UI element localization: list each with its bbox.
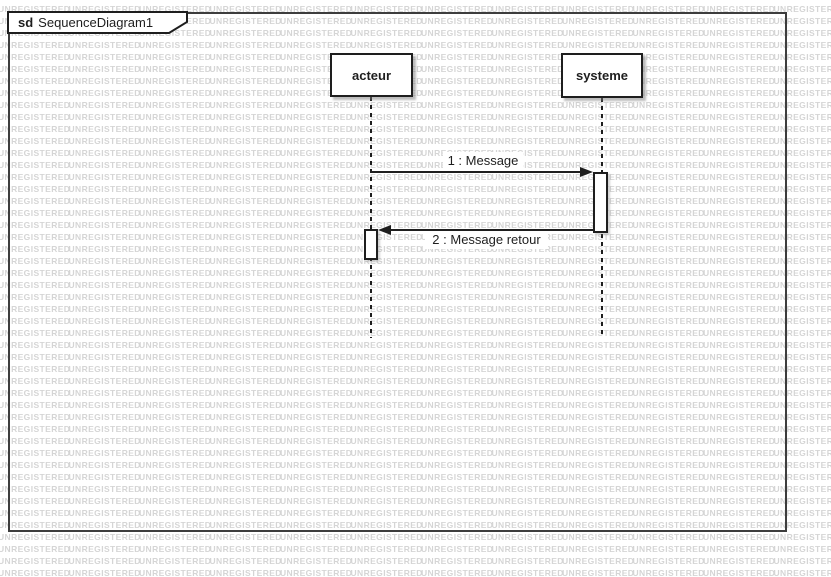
watermark-text: UNREGISTERED (0, 568, 70, 577)
watermark-text: UNREGISTERED (280, 568, 352, 577)
watermark-text: UNREGISTERED (703, 544, 775, 554)
watermark-text: UNREGISTERED (351, 532, 423, 542)
watermark-text: UNREGISTERED (210, 532, 282, 542)
message-1-label[interactable]: 1 : Message (443, 152, 523, 170)
message-2-label[interactable]: 2 : Message retour (425, 231, 548, 249)
watermark-text: UNREGISTERED (0, 532, 70, 542)
diagram-canvas: UNREGISTEREDUNREGISTEREDUNREGISTEREDUNRE… (0, 0, 831, 577)
watermark-text: UNREGISTERED (351, 556, 423, 566)
message-1-arrowhead (580, 167, 593, 177)
watermark-text: UNREGISTERED (633, 556, 705, 566)
watermark-text: UNREGISTERED (492, 556, 564, 566)
watermark-text: UNREGISTERED (633, 544, 705, 554)
watermark-text: UNREGISTERED (139, 532, 211, 542)
watermark-text: UNREGISTERED (633, 532, 705, 542)
activation-bar-acteur[interactable] (364, 229, 378, 260)
watermark-text: UNREGISTERED (492, 544, 564, 554)
watermark-text: UNREGISTERED (421, 556, 493, 566)
frame-title: sdSequenceDiagram1 (18, 13, 153, 33)
watermark-text: UNREGISTERED (562, 532, 634, 542)
watermark-text: UNREGISTERED (774, 544, 831, 554)
watermark-text: UNREGISTERED (562, 544, 634, 554)
watermark-text: UNREGISTERED (774, 556, 831, 566)
watermark-text: UNREGISTERED (633, 568, 705, 577)
watermark-text: UNREGISTERED (280, 532, 352, 542)
lifeline-head-systeme[interactable]: systeme (561, 53, 643, 98)
lifeline-head-acteur[interactable]: acteur (330, 53, 413, 97)
watermark-text: UNREGISTERED (69, 544, 141, 554)
watermark-text: UNREGISTERED (280, 556, 352, 566)
message-1-line[interactable] (371, 171, 581, 173)
watermark-text: UNREGISTERED (139, 556, 211, 566)
watermark-text: UNREGISTERED (492, 532, 564, 542)
frame-keyword: sd (18, 15, 33, 30)
watermark-text: UNREGISTERED (562, 556, 634, 566)
watermark-text: UNREGISTERED (562, 568, 634, 577)
watermark-text: UNREGISTERED (210, 568, 282, 577)
lifeline-acteur-line[interactable] (370, 97, 372, 338)
activation-bar-systeme[interactable] (593, 172, 608, 233)
watermark-text: UNREGISTERED (139, 568, 211, 577)
watermark-text: UNREGISTERED (703, 532, 775, 542)
watermark-text: UNREGISTERED (280, 544, 352, 554)
watermark-text: UNREGISTERED (210, 544, 282, 554)
watermark-text: UNREGISTERED (703, 568, 775, 577)
watermark-text: UNREGISTERED (69, 556, 141, 566)
frame-diagram-name: SequenceDiagram1 (38, 15, 153, 30)
watermark-text: UNREGISTERED (351, 568, 423, 577)
watermark-text: UNREGISTERED (139, 544, 211, 554)
watermark-text: UNREGISTERED (421, 544, 493, 554)
watermark-text: UNREGISTERED (421, 532, 493, 542)
watermark-text: UNREGISTERED (0, 556, 70, 566)
watermark-text: UNREGISTERED (69, 532, 141, 542)
watermark-text: UNREGISTERED (0, 544, 70, 554)
watermark-text: UNREGISTERED (703, 556, 775, 566)
watermark-text: UNREGISTERED (492, 568, 564, 577)
watermark-text: UNREGISTERED (774, 568, 831, 577)
watermark-text: UNREGISTERED (774, 532, 831, 542)
lifeline-systeme-label: systeme (576, 68, 628, 83)
watermark-text: UNREGISTERED (351, 544, 423, 554)
watermark-text: UNREGISTERED (69, 568, 141, 577)
message-2-arrowhead (378, 225, 391, 235)
watermark-text: UNREGISTERED (421, 568, 493, 577)
lifeline-acteur-label: acteur (352, 68, 391, 83)
watermark-text: UNREGISTERED (210, 556, 282, 566)
